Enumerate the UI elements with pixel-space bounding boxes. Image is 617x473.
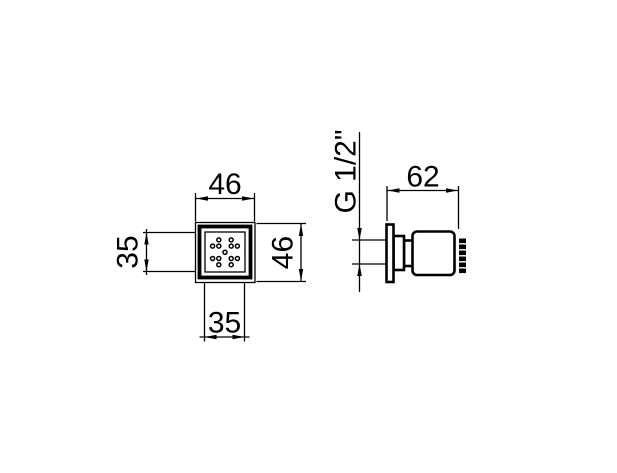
arrowhead-down xyxy=(144,260,148,272)
dimension-label: 35 xyxy=(208,307,241,340)
nozzle-dot xyxy=(217,263,221,267)
knurled-face xyxy=(459,239,466,274)
side-view: G 1/2" 62 xyxy=(330,129,467,292)
arrowhead-right xyxy=(242,196,254,201)
nozzle-dot xyxy=(211,244,215,248)
arrowhead-left xyxy=(196,196,208,201)
nozzle-dot xyxy=(211,257,215,261)
nozzle-dot xyxy=(223,250,227,254)
arrowhead-up xyxy=(144,233,148,245)
arrowhead-left xyxy=(388,188,400,192)
dimension-face-height-left: 35 xyxy=(112,229,205,275)
dimension-width-top: 46 xyxy=(196,168,255,222)
nozzle-dot xyxy=(229,238,233,242)
thread-label: G 1/2" xyxy=(330,129,363,213)
knurl-tooth xyxy=(459,251,466,256)
nozzle-dot xyxy=(217,244,221,248)
wall-plate xyxy=(387,225,394,283)
knurl-tooth xyxy=(459,269,466,274)
knurl-tooth xyxy=(459,245,466,250)
dimension-face-width-bottom: 35 xyxy=(200,283,250,342)
knurl-tooth xyxy=(459,257,466,262)
arrowhead-down xyxy=(357,228,362,240)
arrowhead-up xyxy=(299,224,303,236)
thread-callout: G 1/2" xyxy=(330,129,387,292)
mounting-flange xyxy=(394,236,405,270)
arrowhead-down xyxy=(299,269,303,281)
front-view: 46 46 35 35 xyxy=(112,168,307,342)
dimension-depth-top: 62 xyxy=(387,161,459,230)
nozzle-dot xyxy=(229,263,233,267)
dimension-label: 46 xyxy=(267,236,300,269)
technical-drawing-canvas: 46 46 35 35 xyxy=(0,0,617,473)
nozzle-dot xyxy=(229,257,233,261)
nozzle-dot xyxy=(235,244,239,248)
dimension-label: 62 xyxy=(406,161,439,194)
drawing-svg: 46 46 35 35 xyxy=(0,0,617,473)
jet-body xyxy=(413,232,455,276)
nozzle-dot xyxy=(217,257,221,261)
nozzle-dot xyxy=(217,238,221,242)
nozzle-dot xyxy=(229,244,233,248)
arrowhead-up xyxy=(357,264,362,276)
dimension-label: 46 xyxy=(208,168,241,201)
nozzle-dot xyxy=(235,257,239,261)
knurl-tooth xyxy=(459,239,466,244)
arrowhead-right xyxy=(446,188,458,192)
knurl-tooth xyxy=(459,263,466,268)
dimension-height-right: 46 xyxy=(257,224,307,282)
dimension-label: 35 xyxy=(112,235,145,268)
